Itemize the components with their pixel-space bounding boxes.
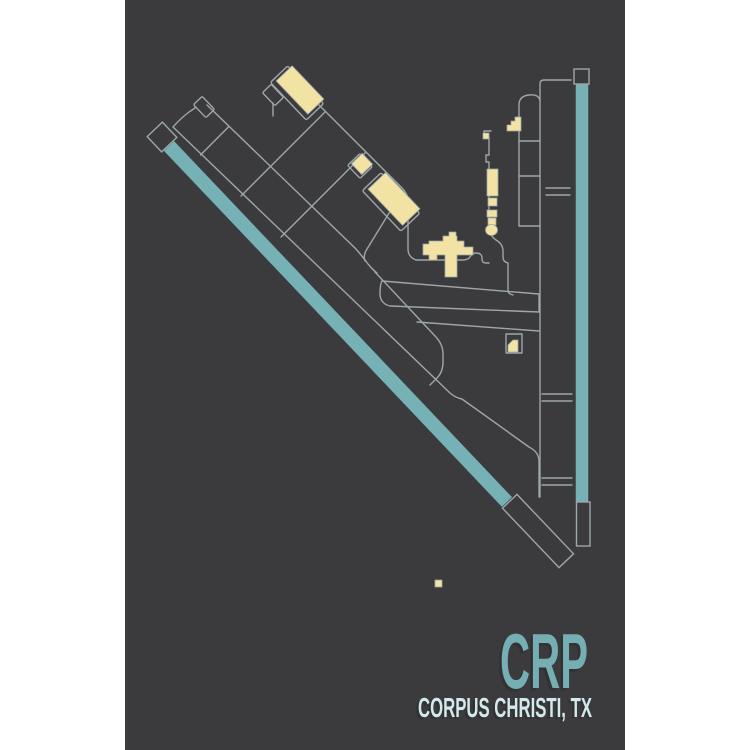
concourse-building-1: [487, 169, 498, 196]
closed-strip-lower-line: [417, 322, 539, 331]
closed-strip-outline: [380, 281, 539, 312]
taxiway-network: [173, 80, 572, 497]
runways: [147, 69, 590, 568]
page-canvas: { "poster": { "airport_code": "CRP", "ci…: [0, 0, 750, 750]
taxiway-rung-2: [241, 112, 326, 197]
hangar-building-icon: [276, 66, 324, 114]
east-rail-inner-jog: [519, 95, 540, 226]
taxiway-rail-1: [207, 105, 377, 273]
diagonal-runway-end-pad: [502, 494, 573, 567]
vertical-runway-end-pad: [577, 502, 591, 546]
taxiway-parallel-diagonal: [173, 127, 539, 497]
concourse-building-5: [486, 225, 498, 236]
city-label: CORPUS CHRISTI, TX: [418, 692, 592, 723]
poster-typography: CRP CRP CORPUS CHRISTI, TX CORPUS CHRIST…: [416, 617, 593, 725]
concourse-building-3: [487, 210, 497, 217]
airport-diagram: CRP CRP CORPUS CHRISTI, TX CORPUS CHRIST…: [125, 0, 625, 750]
taxiway-rung-1: [201, 127, 229, 155]
airport-poster: CRP CRP CORPUS CHRISTI, TX CORPUS CHRIST…: [125, 0, 625, 750]
tiny-apron-building: [483, 133, 489, 139]
taxiway-top-connector: [173, 108, 195, 127]
south-lone-building: [435, 580, 442, 587]
diagonal-runway-icon: [169, 146, 507, 502]
terminal-building-icon: [423, 232, 473, 277]
taxiway-rail-3-apron: [310, 96, 489, 263]
concourse-building-4: [488, 218, 496, 225]
concourse-building-2: [488, 198, 497, 206]
midfield-building-icon: [508, 340, 518, 352]
flag-pad-1: [193, 96, 214, 117]
east-rail-outer: [540, 80, 571, 497]
small-hangar-icon: [351, 153, 372, 174]
stepped-building-icon: [507, 117, 521, 131]
vertical-runway-top-cap: [574, 69, 589, 84]
